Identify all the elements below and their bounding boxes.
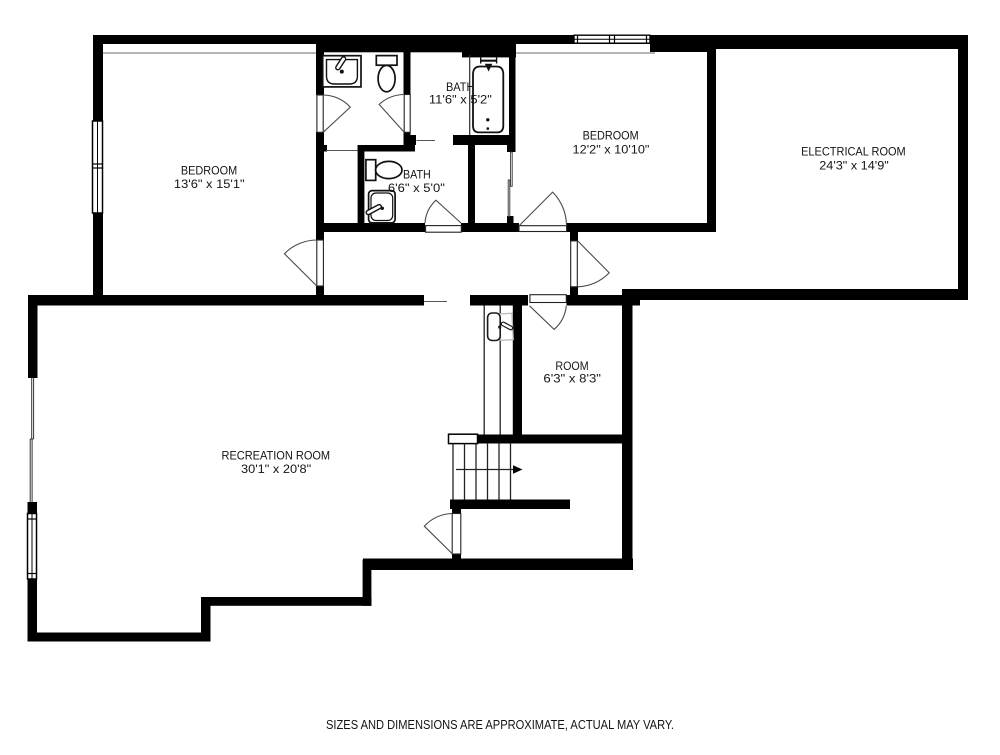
- svg-text:13'6" x 15'1": 13'6" x 15'1": [174, 179, 245, 191]
- svg-text:6'6" x 5'0": 6'6" x 5'0": [388, 183, 445, 195]
- svg-text:30'1" x 20'8": 30'1" x 20'8": [241, 464, 311, 476]
- svg-text:24'3" x 14'9": 24'3" x 14'9": [819, 160, 889, 172]
- svg-text:11'6" x 5'2": 11'6" x 5'2": [429, 95, 492, 107]
- svg-text:RECREATION ROOM: RECREATION ROOM: [222, 451, 331, 463]
- svg-text:6'3" x 8'3": 6'3" x 8'3": [543, 374, 601, 386]
- svg-text:12'2" x 10'10": 12'2" x 10'10": [573, 144, 650, 156]
- svg-text:SIZES AND DIMENSIONS ARE APPRO: SIZES AND DIMENSIONS ARE APPROXIMATE, AC…: [326, 717, 674, 732]
- svg-text:ELECTRICAL ROOM: ELECTRICAL ROOM: [801, 147, 906, 159]
- svg-text:ROOM: ROOM: [555, 361, 588, 373]
- svg-text:BATH: BATH: [446, 82, 475, 94]
- svg-text:BATH: BATH: [403, 169, 431, 181]
- svg-text:BEDROOM: BEDROOM: [583, 131, 639, 143]
- svg-text:BEDROOM: BEDROOM: [181, 166, 237, 178]
